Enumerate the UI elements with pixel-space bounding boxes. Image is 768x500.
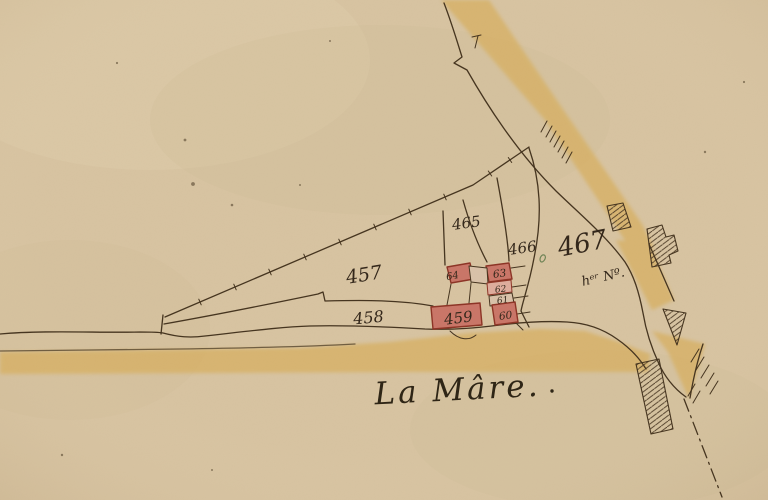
paper-grain-overlay <box>0 0 768 500</box>
map-canvas: 457 458 459 465 466 467 hᵉʳ Nº. 64 63 62… <box>0 0 768 500</box>
cadastral-map-screenshot: 457 458 459 465 466 467 hᵉʳ Nº. 64 63 62… <box>0 0 768 500</box>
